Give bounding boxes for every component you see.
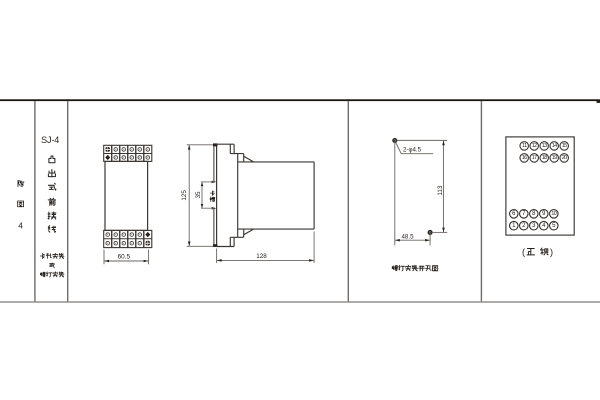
svg-text:48.5: 48.5 xyxy=(401,234,414,241)
svg-text:60.5: 60.5 xyxy=(118,254,131,261)
svg-text:125: 125 xyxy=(181,190,188,201)
svg-text:2-φ4.5: 2-φ4.5 xyxy=(403,147,422,154)
svg-text:18: 18 xyxy=(542,155,547,161)
svg-text:5: 5 xyxy=(552,223,556,229)
svg-text:14: 14 xyxy=(552,143,557,149)
svg-text:3: 3 xyxy=(532,223,536,229)
svg-text:4: 4 xyxy=(542,223,546,229)
svg-text:8: 8 xyxy=(532,211,536,217)
svg-text:11: 11 xyxy=(522,143,527,149)
svg-text:2: 2 xyxy=(522,223,526,229)
svg-text:9: 9 xyxy=(542,211,546,217)
svg-text:): ) xyxy=(550,247,553,257)
svg-text:1: 1 xyxy=(512,223,516,229)
svg-text:35: 35 xyxy=(195,191,202,199)
svg-text:17: 17 xyxy=(532,155,537,161)
svg-text:13: 13 xyxy=(542,143,547,149)
svg-text:SJ-4: SJ-4 xyxy=(41,135,59,145)
svg-text:6: 6 xyxy=(512,211,516,217)
svg-text:113: 113 xyxy=(437,185,444,196)
svg-text:15: 15 xyxy=(562,143,567,149)
svg-text:4: 4 xyxy=(18,221,23,231)
svg-text:7: 7 xyxy=(522,211,526,217)
svg-text:(: ( xyxy=(522,247,525,257)
svg-text:20: 20 xyxy=(562,155,567,161)
svg-text:16: 16 xyxy=(522,155,527,161)
svg-text:12: 12 xyxy=(532,143,537,149)
svg-text:128: 128 xyxy=(256,253,267,260)
svg-text:10: 10 xyxy=(551,211,556,217)
svg-text:19: 19 xyxy=(552,155,557,161)
